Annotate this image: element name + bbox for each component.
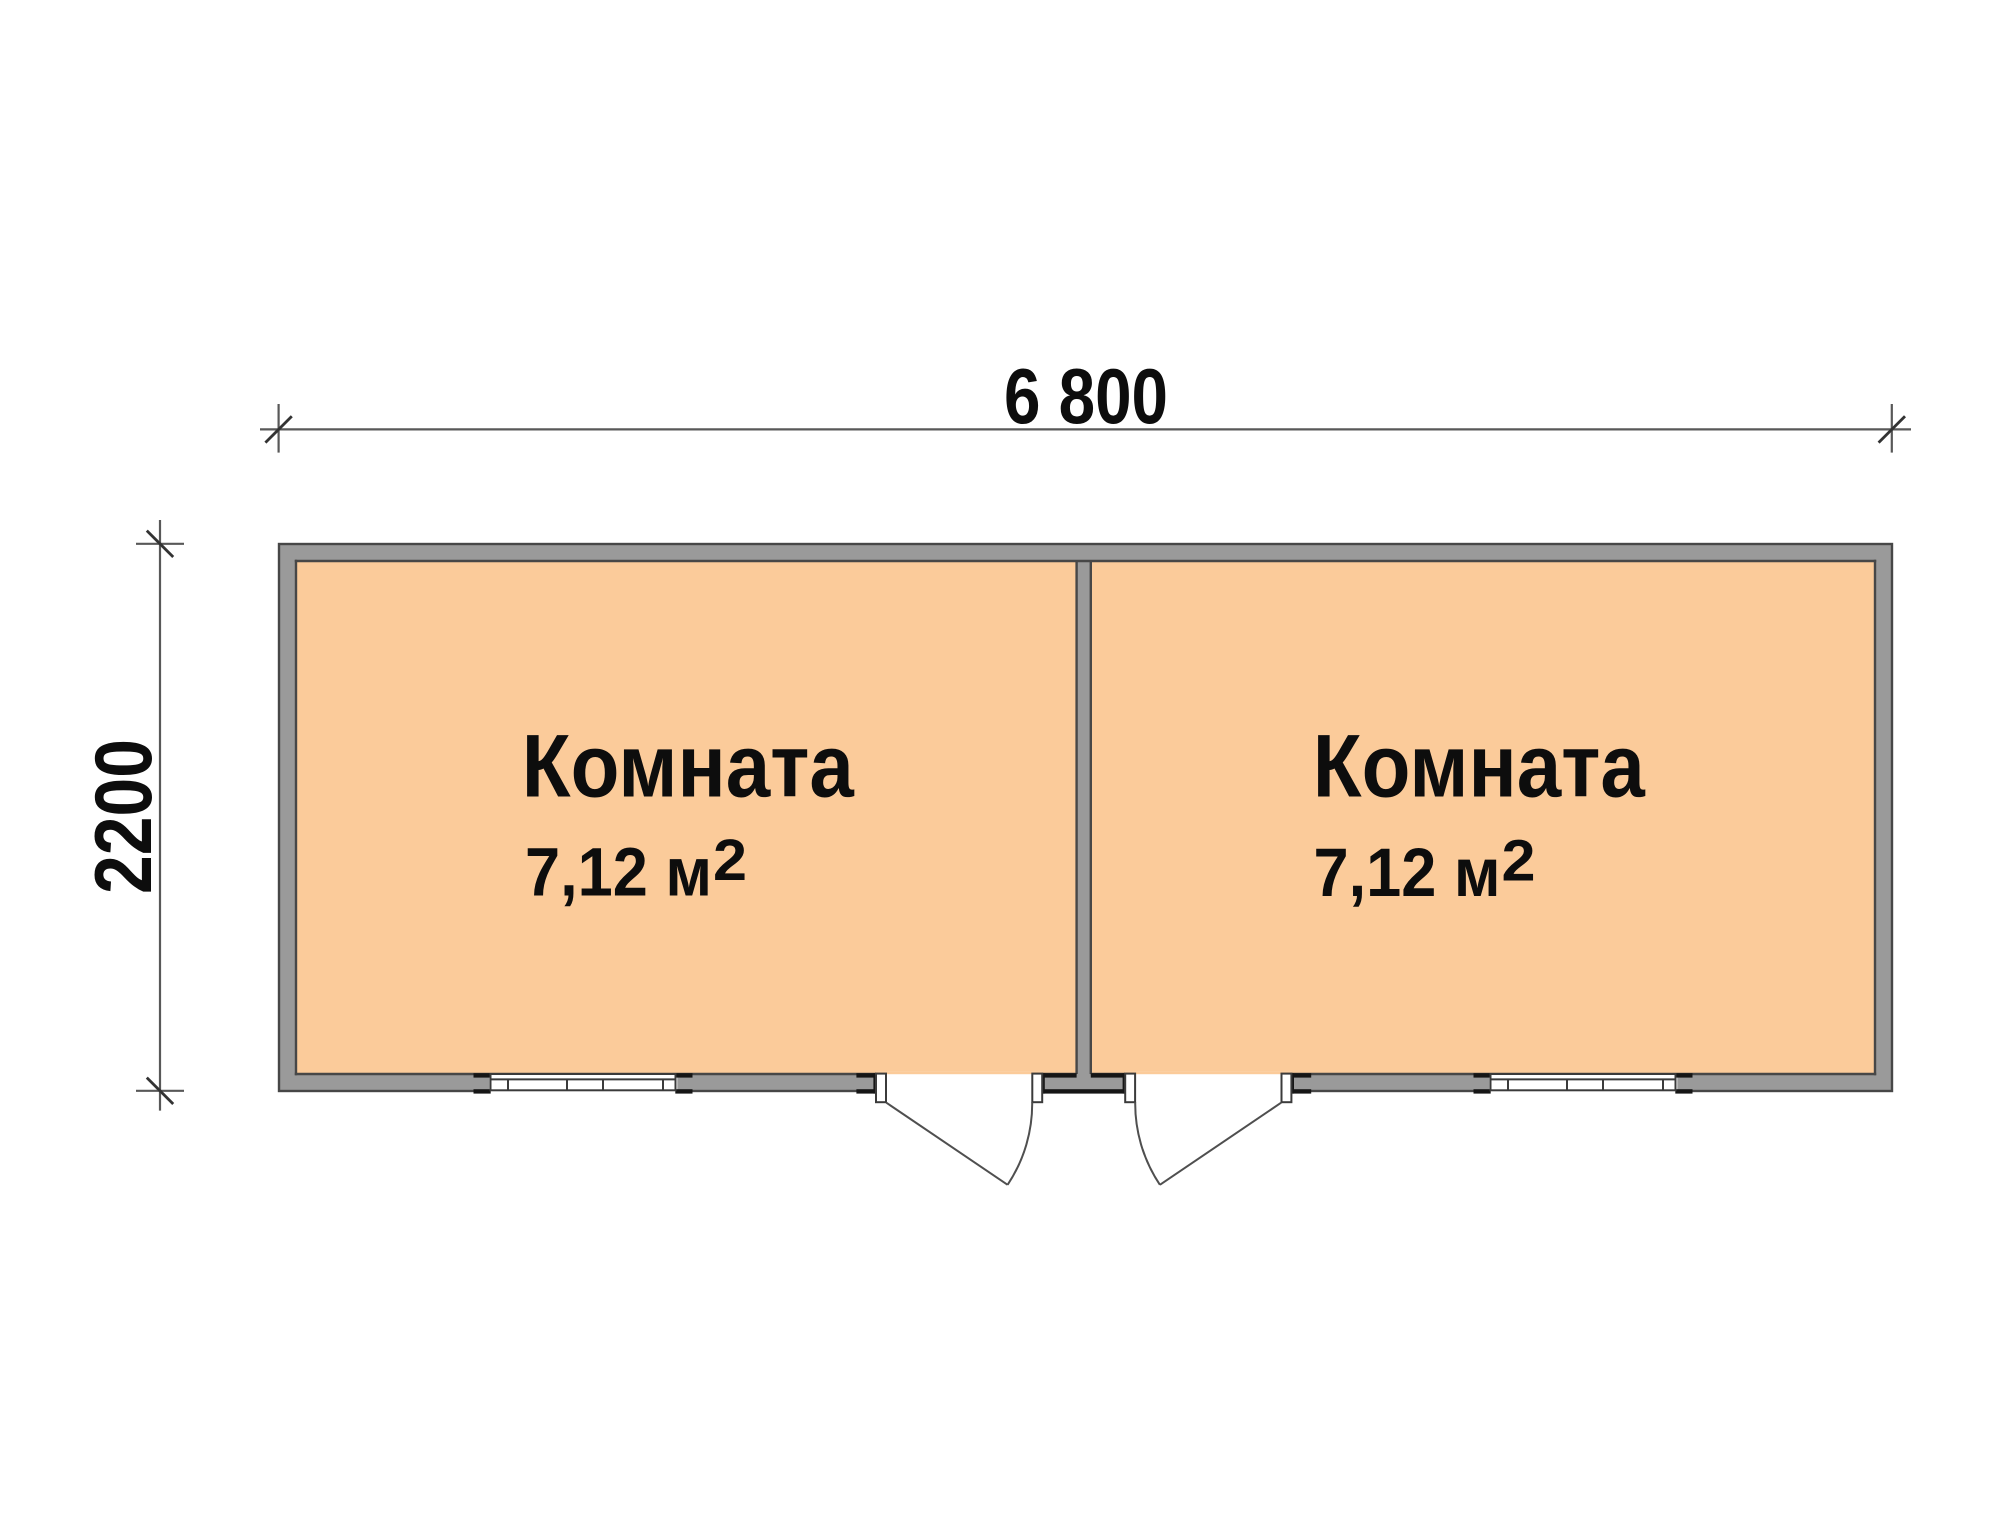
svg-text:6 800: 6 800 <box>1004 352 1168 440</box>
svg-text:Комната: Комната <box>522 716 855 816</box>
svg-text:7,12 м: 7,12 м <box>525 834 712 911</box>
svg-text:7,12 м: 7,12 м <box>1314 834 1501 911</box>
svg-text:2200: 2200 <box>79 739 169 894</box>
svg-text:Комната: Комната <box>1313 716 1646 816</box>
svg-text:2: 2 <box>1502 828 1536 893</box>
svg-text:2: 2 <box>713 828 747 893</box>
